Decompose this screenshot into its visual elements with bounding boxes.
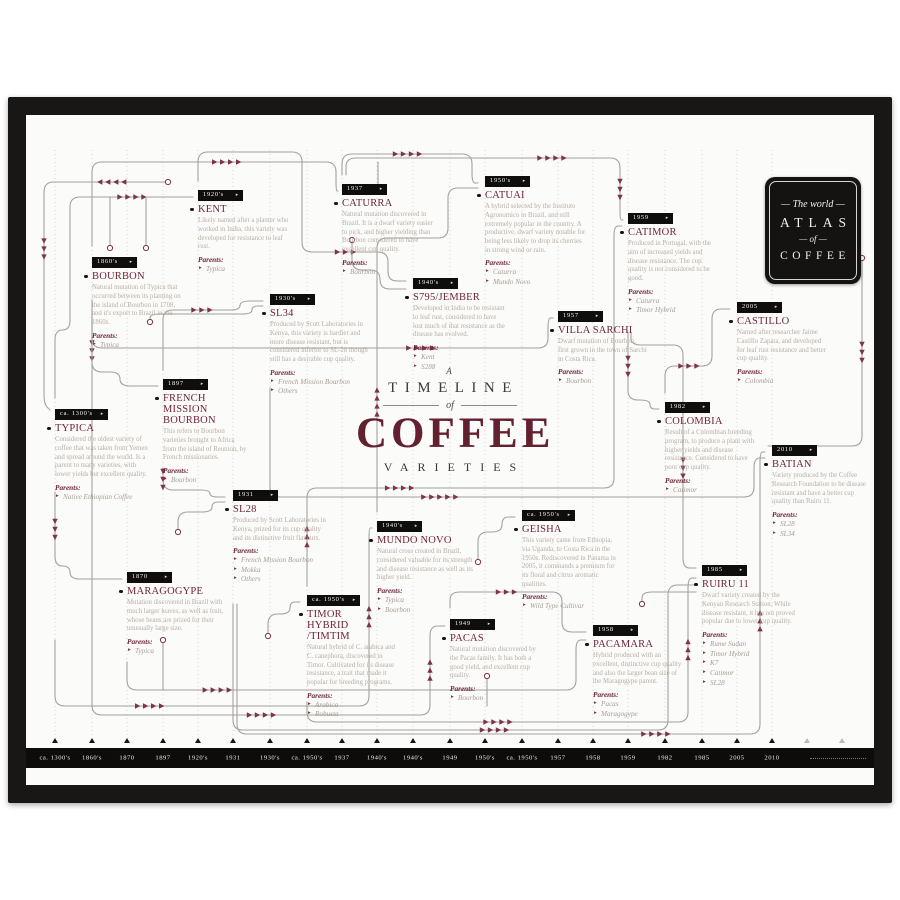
timeline-year-label: 1937 [334,755,349,762]
variety-node: 1937▸CATURRANatural mutation discovered … [342,177,438,277]
variety-name: CASTILLO [737,316,829,327]
variety-name: BATIAN [772,459,872,470]
timeline-tick-icon [124,738,130,743]
variety-description: Natural hybrid of C. arabica and C. cane… [307,644,399,688]
variety-description: Result of a Colombian breeding program, … [665,429,755,473]
year-label: 1957 [563,313,579,320]
parent-item: SL34 [772,530,872,540]
title-coffee: COFFEE [352,412,548,456]
parent-item: Arabica [307,701,399,711]
parents-label: Parents: [413,343,505,352]
chevron-right-icon: ▸ [201,382,204,387]
variety-name: MARAGOGYPE [127,586,227,597]
variety-name: VILLA SARCHI [558,325,648,336]
badge-inner-border: The world ATLAS of COFFEE [769,181,857,280]
timeline-year-label: 1940's [367,755,387,762]
year-label: 1930's [275,296,296,303]
chevron-right-icon: ▸ [810,448,813,453]
chevron-right-icon: ▸ [165,575,168,580]
year-badge: 1920's▸ [198,190,243,201]
variety-name: TYPICA [55,423,151,434]
parent-item: Native Ethiopian Coffee [55,493,151,503]
parent-item: Catimor [665,486,755,496]
year-label: 1959 [633,215,649,222]
timeline-year-label: 1949 [442,755,457,762]
timeline-year-label: 1860's [82,755,102,762]
parents-label: Parents: [163,466,249,475]
parents-label: Parents: [377,586,473,595]
title-timeline: TIMELINE [352,380,548,397]
variety-node: 1870▸MARAGOGYPEMutation discovered in Br… [127,565,227,657]
timeline-year-label: ca. 1950's [291,755,322,762]
timeline-tick-icon [839,738,845,743]
variety-node: 1949▸PACASNatural mutation discovered by… [450,612,538,704]
year-label: 1940's [418,280,439,287]
parent-item: Others [270,387,368,397]
year-badge: 1860's▸ [92,257,137,268]
timeline-year-label: 1920's [188,755,208,762]
year-label: 1937 [347,186,363,193]
parents-label: Parents: [342,258,438,267]
parent-item: Kent [413,353,505,363]
parent-item: Mundo Novo [485,278,587,288]
variety-node: 1931▸SL28Produced by Scott Laboratories … [233,483,329,585]
chevron-right-icon: ▸ [523,179,526,184]
timeline-tick-icon [482,738,488,743]
variety-name: CATIMOR [628,227,718,238]
timeline-tick-icon [447,738,453,743]
variety-name: SL34 [270,308,368,319]
parent-item: Catimor [702,669,797,679]
timeline-year-label: 1982 [657,755,672,762]
timeline-year-label: 2005 [729,755,744,762]
year-label: 1982 [670,404,686,411]
parent-item: Wild Type Cultivar [522,602,619,612]
timeline-tick-icon [160,738,166,743]
variety-name: SL28 [233,504,329,515]
chevron-right-icon: ▸ [271,493,274,498]
parents-label: Parents: [485,258,587,267]
variety-name: COLOMBIA [665,416,755,427]
variety-node: 1982▸COLOMBIAResult of a Colombian breed… [665,395,755,495]
year-badge: 1957▸ [558,311,603,322]
variety-description: Natural mutation of Typica that occurred… [92,284,184,328]
chevron-right-icon: ▸ [775,305,778,310]
variety-node: 1958▸PACAMARAHybrid produced with an exc… [593,618,683,719]
timeline-tick-icon [590,738,596,743]
parent-item: Typica [377,596,473,606]
timeline-tick-icon [230,738,236,743]
chevron-right-icon: ▸ [415,524,418,529]
year-badge: 1958▸ [593,625,638,636]
year-badge: 1897▸ [163,379,208,390]
year-label: 1870 [132,574,148,581]
variety-node: 1959▸CATIMORProduced in Portugal, with t… [628,206,718,316]
variety-name: CATUAI [485,190,587,201]
variety-node: 1860's▸BOURBONNatural mutation of Typica… [92,250,184,350]
parents-label: Parents: [92,331,184,340]
variety-name: PACAS [450,633,538,644]
year-label: 1958 [598,627,614,634]
parent-item: Bourbon [558,377,648,387]
timeline-tick-icon [734,738,740,743]
variety-node: 1940's▸MUNDO NOVONatural cross created i… [377,514,473,615]
variety-node: 2005▸CASTILLONamed after researcher Jaim… [737,295,829,387]
chevron-right-icon: ▸ [236,193,239,198]
variety-name: CATURRA [342,198,438,209]
variety-description: Variety produced by the Coffee Research … [772,472,872,507]
chevron-right-icon: ▸ [130,260,133,265]
timeline-tick-icon [339,738,345,743]
year-badge: 1940's▸ [377,521,422,532]
timeline-tick-icon [410,738,416,743]
timeline-tick-icon [625,738,631,743]
parent-item: Rume Sudan [702,640,797,650]
variety-name: FRENCHMISSIONBOURBON [163,393,249,426]
timeline-tick-icon [804,738,810,743]
year-badge: 1985▸ [702,565,747,576]
year-badge: 1949▸ [450,619,495,630]
parents-label: Parents: [628,287,718,296]
year-label: 1860's [97,259,118,266]
year-badge: 1937▸ [342,184,387,195]
year-badge: 1940's▸ [413,278,458,289]
variety-description: A hybrid selected by the Instituto Agron… [485,203,587,256]
timeline-dotted-tail [810,758,866,759]
variety-node: 1957▸VILLA SARCHIDwarf mutation of Bourb… [558,304,648,387]
parents-label: Parents: [522,592,619,601]
variety-description: This variety came from Ethiopia, via Uga… [522,537,619,590]
variety-node: ca. 1300's▸TYPICAConsidered the oldest v… [55,402,151,502]
year-label: 1931 [238,492,254,499]
parent-item: SL28 [772,520,872,530]
variety-name: S795/JEMBER [413,292,505,303]
timeline-year-label: 1940's [403,755,423,762]
chevron-right-icon: ▸ [353,598,356,603]
parent-item: French Mission Bourbon [270,378,368,388]
variety-description: Developed in India to be resistant to le… [413,305,505,340]
variety-node: 1920's▸KENTLikely named after a planter … [198,183,294,275]
timeline-year-label: 1958 [585,755,600,762]
variety-node: 1985▸RUIRU 11Dwarf variety created by th… [702,558,797,688]
variety-name: GEISHA [522,524,619,535]
chevron-right-icon: ▸ [666,216,669,221]
timeline-year-label: 2010 [764,755,779,762]
parents-label: Parents: [450,684,538,693]
timeline-tick-icon [89,738,95,743]
parent-item: Colombia [737,377,829,387]
timeline-year-label: 1870 [119,755,134,762]
parents-label: Parents: [270,368,368,377]
parents-label: Parents: [55,483,151,492]
chevron-right-icon: ▸ [101,412,104,417]
year-badge: 2005▸ [737,302,782,313]
timeline-tick-icon [374,738,380,743]
parent-item: Timor Hybrid [702,650,797,660]
variety-description: Produced by Scott Laboratories in Kenya,… [233,517,329,543]
parent-item: Caturra [485,268,587,278]
badge-of: of [799,234,827,244]
timeline-year-label: 1959 [620,755,635,762]
parent-item: French Mission Bourbon [233,556,329,566]
badge-coffee: COFFEE [776,250,850,262]
parents-label: Parents: [198,255,294,264]
year-label: 2005 [742,304,758,311]
year-badge: 1931▸ [233,490,278,501]
variety-description: Considered the oldest variety of coffee … [55,436,151,480]
year-badge: 1870▸ [127,572,172,583]
parents-label: Parents: [593,690,683,699]
parent-item: Others [233,575,329,585]
variety-description: Dwarf mutation of Bourbon, first grown i… [558,338,648,364]
timeline-year-label: ca. 1300's [39,755,70,762]
chevron-right-icon: ▸ [451,281,454,286]
variety-description: Hybrid produced with an excellent, disti… [593,652,683,687]
variety-description: Produced by Scott Laboratories in Kenya,… [270,321,368,365]
variety-description: Likely named after a planter who worked … [198,217,294,252]
year-badge: 1959▸ [628,213,673,224]
parents-label: Parents: [233,546,329,555]
timeline-tick-icon [304,738,310,743]
parents-label: Parents: [737,367,829,376]
timeline-year-label: ca. 1950's [506,755,537,762]
parent-item: Robusta [307,710,399,720]
parent-item: Pacas [593,700,683,710]
parent-item: K7 [702,659,797,669]
year-label: 1920's [203,192,224,199]
chevron-right-icon: ▸ [596,314,599,319]
badge-atlas: ATLAS [774,215,852,231]
year-label: 1940's [382,523,403,530]
chevron-right-icon: ▸ [703,405,706,410]
timeline-tick-icon [195,738,201,743]
year-badge: 1950's▸ [485,176,530,187]
parents-label: Parents: [702,630,797,639]
variety-node: 1950's▸CATUAIA hybrid selected by the In… [485,169,587,288]
variety-name: BOURBON [92,271,184,282]
parent-item: Mokka [233,566,329,576]
year-label: 1950's [490,178,511,185]
variety-name: MUNDO NOVO [377,535,473,546]
variety-description: Named after researcher Jaime Castillo Za… [737,329,829,364]
variety-node: ca. 1950's▸GEISHAThis variety came from … [522,503,619,612]
variety-description: This refers to Bourbon varieties brought… [163,428,249,463]
parent-item: Caturra [628,297,718,307]
timeline-year-label: 1950's [475,755,495,762]
timeline-tick-icon [267,738,273,743]
year-label: 2010 [777,447,793,454]
year-badge: ca. 1300's▸ [55,409,108,420]
chevron-right-icon: ▸ [740,568,743,573]
parent-item: Typica [198,265,294,275]
chevron-right-icon: ▸ [380,187,383,192]
parent-item: Typica [92,341,184,351]
timeline-tick-icon [662,738,668,743]
variety-node: 2010▸BATIANVariety produced by the Coffe… [772,438,872,539]
timeline-tick-icon [555,738,561,743]
chevron-right-icon: ▸ [488,622,491,627]
variety-description: Natural cross created in Brazil, conside… [377,548,473,583]
year-label: 1897 [168,381,184,388]
parents-label: Parents: [307,691,399,700]
timeline-year-label: 1957 [550,755,565,762]
year-label: ca. 1950's [312,597,345,604]
badge-the-world: The world [781,199,845,210]
variety-node: 1930's▸SL34Produced by Scott Laboratorie… [270,287,368,397]
title-rule-left [383,405,439,406]
year-badge: 1982▸ [665,402,710,413]
variety-node: 1897▸FRENCHMISSIONBOURBONThis refers to … [163,372,249,486]
variety-description: Produced in Portugal, with the aim of in… [628,240,718,284]
timeline-year-label: 1985 [694,755,709,762]
year-badge: 1930's▸ [270,294,315,305]
title-rule-right [461,405,517,406]
year-label: ca. 1300's [60,411,93,418]
variety-name: KENT [198,204,294,215]
variety-name: RUIRU 11 [702,579,797,590]
parent-item: Timor Hybrid [628,306,718,316]
year-label: ca. 1950's [527,512,560,519]
year-badge: ca. 1950's▸ [307,595,360,606]
title-varieties: VARIETIES [352,460,548,475]
chevron-right-icon: ▸ [568,513,571,518]
variety-description: Mutation discovered in Brazil with much … [127,599,227,634]
parents-label: Parents: [772,510,872,519]
year-badge: ca. 1950's▸ [522,510,575,521]
timeline-year-label: 1930's [260,755,280,762]
timeline-tick-icon [699,738,705,743]
year-label: 1949 [455,621,471,628]
parent-item: S288 [413,363,505,373]
variety-name: PACAMARA [593,639,683,650]
year-badge: 2010▸ [772,445,817,456]
timeline-year-label: 1897 [155,755,170,762]
parent-item: Bourbon [450,694,538,704]
timeline-year-label: 1931 [225,755,240,762]
atlas-of-coffee-badge: The world ATLAS of COFFEE [765,177,861,284]
chevron-right-icon: ▸ [308,297,311,302]
variety-description: Dwarf variety created by the Kenyan Rese… [702,592,797,627]
variety-description: Natural mutation discovered by the Pacas… [450,646,538,681]
parents-label: Parents: [558,367,648,376]
parents-label: Parents: [127,637,227,646]
timeline-tick-icon [769,738,775,743]
poster-title: A TIMELINE of COFFEE VARIETIES [352,366,548,475]
parent-item: Typica [127,647,227,657]
parent-item: SL28 [702,679,797,689]
year-label: 1985 [707,567,723,574]
parents-label: Parents: [665,476,755,485]
timeline-bar: ca. 1300's1860's187018971920's19311930's… [26,748,874,768]
timeline-tick-icon [519,738,525,743]
timeline-tick-icon [52,738,58,743]
parent-item: Maragogype [593,710,683,720]
chevron-right-icon: ▸ [631,628,634,633]
variety-description: Natural mutation discovered in Brazil. I… [342,211,438,255]
